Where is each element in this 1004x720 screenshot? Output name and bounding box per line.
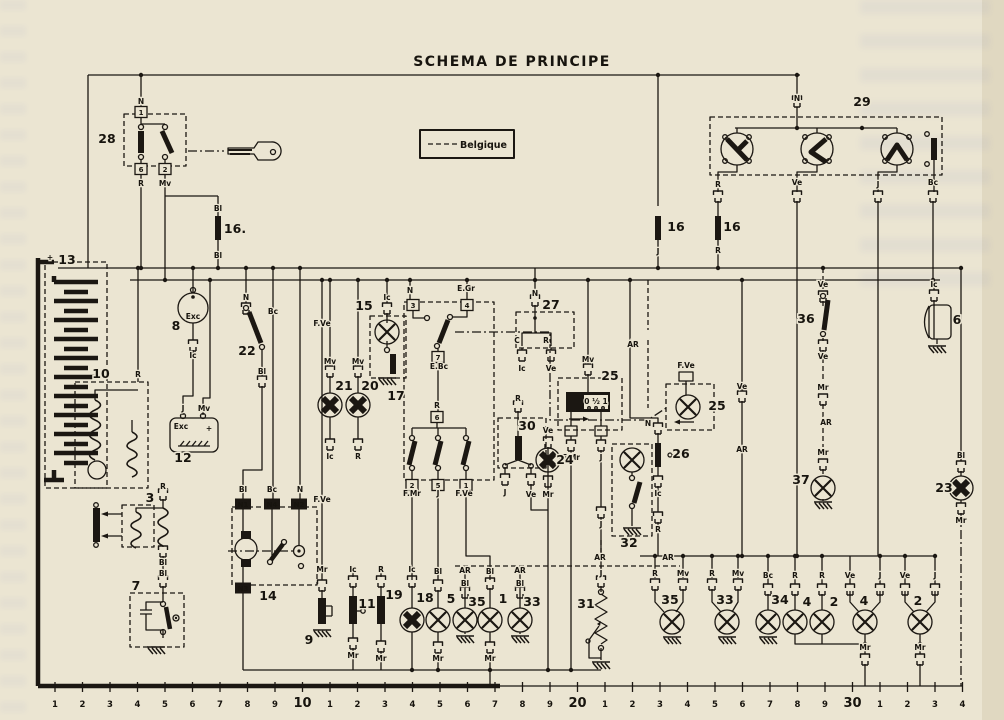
component-number: 20 bbox=[361, 378, 379, 393]
wire-label: R bbox=[355, 452, 361, 461]
scale-number: 5 bbox=[437, 700, 443, 710]
wire-label: R bbox=[160, 482, 166, 491]
scale-number: 7 bbox=[217, 700, 223, 710]
scale-number: 5 bbox=[712, 700, 718, 710]
wire-label: N bbox=[138, 97, 144, 106]
wire-label: Bc bbox=[928, 178, 938, 187]
wire-label: Ic bbox=[408, 565, 415, 574]
wire-label: F.Ve bbox=[313, 319, 330, 328]
terminal-box-label: N2 bbox=[294, 501, 305, 509]
component-number: 19 bbox=[385, 587, 402, 602]
wire-label: Mv bbox=[198, 404, 210, 413]
component-28-ignition-switch bbox=[124, 114, 186, 166]
component-number: 32 bbox=[620, 535, 637, 550]
component-19-switch bbox=[377, 596, 385, 624]
component-35r-lamp bbox=[660, 610, 684, 644]
wire-label: R bbox=[819, 571, 825, 580]
component-number: 16 bbox=[667, 219, 685, 234]
component-number: 26 bbox=[672, 446, 690, 461]
wire-label: Ic bbox=[518, 364, 525, 373]
wire-label: R bbox=[715, 180, 721, 189]
wire-label: R bbox=[138, 179, 144, 188]
schematic-canvas: SCHEMA DE PRINCIPE Belgique 1623476251N1… bbox=[0, 0, 1004, 720]
scale-number: 20 bbox=[568, 696, 586, 711]
component-37-lamp bbox=[811, 476, 835, 509]
fuse-16-right bbox=[715, 216, 721, 240]
scale-number: 3 bbox=[932, 700, 938, 710]
wire-label: AR bbox=[820, 418, 832, 427]
component-1-lamp bbox=[478, 608, 502, 632]
wire-label: Mv bbox=[352, 357, 364, 366]
ignition-key-icon bbox=[228, 142, 281, 160]
component-number: 35 bbox=[661, 592, 678, 607]
component-18-lamp bbox=[400, 608, 424, 632]
component-33-lamp bbox=[508, 608, 532, 643]
scale-number: 7 bbox=[492, 700, 498, 710]
wire-label: Mr bbox=[817, 448, 828, 457]
terminal-box-label: N3 bbox=[238, 585, 249, 593]
component-32-lamp-switch bbox=[612, 444, 652, 536]
component-number: 31 bbox=[577, 596, 594, 611]
wire-label: Ic bbox=[383, 293, 390, 302]
component-number: 16. bbox=[224, 221, 246, 236]
wire-label: Bl bbox=[957, 451, 965, 460]
wire-label: Ic bbox=[349, 565, 356, 574]
scale-number: 8 bbox=[795, 700, 801, 710]
wire-label: Ic bbox=[654, 489, 661, 498]
component-number: 15 bbox=[355, 298, 372, 313]
scale-number: 2 bbox=[80, 700, 86, 710]
wire-label: Mr bbox=[914, 643, 925, 652]
scale-number: 9 bbox=[272, 700, 278, 710]
component-number: 35 bbox=[468, 594, 485, 609]
scale-number: 6 bbox=[740, 700, 746, 710]
component-25-selector bbox=[558, 378, 622, 436]
wire-label: N bbox=[407, 286, 413, 295]
component-25-pilot-lamp bbox=[666, 372, 714, 430]
wire-label: Ve bbox=[526, 490, 536, 499]
component-number: 25 bbox=[601, 368, 618, 383]
wire-label: N bbox=[645, 419, 651, 428]
scale-number: 4 bbox=[410, 700, 416, 710]
wire-label: Ic bbox=[189, 351, 196, 360]
wire-label: F.Mr bbox=[403, 489, 421, 498]
component-33r-lamp bbox=[715, 610, 739, 644]
component-number: 27 bbox=[542, 297, 559, 312]
wire-label: Mr bbox=[817, 383, 828, 392]
wire-label: R bbox=[655, 525, 661, 534]
wire-label: J bbox=[599, 569, 603, 578]
wire-label: Bl bbox=[516, 579, 524, 588]
component-number: 25 bbox=[708, 398, 725, 413]
wire-label: Mr bbox=[347, 651, 358, 660]
wire-label: N bbox=[297, 485, 303, 494]
component-number: 24 bbox=[556, 452, 574, 467]
wire-label: Mr bbox=[316, 565, 327, 574]
component-15-lamp-switch bbox=[370, 316, 406, 385]
component-14-flasher-relay bbox=[232, 507, 317, 585]
wire-label: Mr bbox=[432, 654, 443, 663]
wire-label: F.Ve bbox=[677, 361, 694, 370]
component-number: 18 bbox=[416, 590, 433, 605]
terminal-box-label: 7 bbox=[436, 354, 441, 362]
wire-label: AR bbox=[514, 566, 526, 575]
scale-number: 1 bbox=[602, 700, 608, 710]
legend-belgique: Belgique bbox=[420, 130, 514, 158]
wire-label: Mr bbox=[859, 643, 870, 652]
wire-label: Bc bbox=[763, 571, 773, 580]
wire-label: Mr bbox=[542, 490, 553, 499]
wire-label: R bbox=[715, 246, 721, 255]
component-17-switch-block bbox=[404, 302, 494, 480]
scale-number: 10 bbox=[293, 696, 311, 711]
terminal-box-label: N4 bbox=[267, 501, 278, 509]
scale-number: 1 bbox=[877, 700, 883, 710]
wire-label: Bl bbox=[214, 251, 222, 260]
component-number: 8 bbox=[172, 318, 181, 333]
wire-label: Bc bbox=[267, 485, 277, 494]
wire-label: Ve bbox=[900, 571, 910, 580]
scanned-schematic-page: SCHEMA DE PRINCIPE Belgique 1623476251N1… bbox=[0, 0, 1004, 720]
wire-label: Ic bbox=[930, 280, 937, 289]
wire-label: Mr bbox=[375, 654, 386, 663]
scale-number: 3 bbox=[382, 700, 388, 710]
component-number: 34 bbox=[771, 592, 789, 607]
terminal-box-label: N1 bbox=[238, 501, 249, 509]
wire-label: R bbox=[792, 571, 798, 580]
terminal-boxes-layer: 1623476251N1N4N2N3 bbox=[135, 107, 473, 594]
scale-number: 3 bbox=[107, 700, 113, 710]
component-number: 36 bbox=[797, 311, 815, 326]
wire-label: R bbox=[434, 401, 440, 410]
component-9-brake-switch bbox=[313, 598, 332, 637]
component-number: 16 bbox=[723, 219, 741, 234]
component-2-lamp bbox=[810, 610, 834, 634]
labels-layer: NRMvBlBlNRVeJBcJR+RExcIcJMvExc+NBcBlMvMv… bbox=[47, 94, 967, 663]
wire-label: Ve bbox=[818, 352, 828, 361]
fuse-16-left bbox=[215, 216, 221, 240]
wire-label: Bl bbox=[214, 204, 222, 213]
component-number: 9 bbox=[305, 632, 314, 647]
component-3-ignition-coil bbox=[93, 503, 168, 548]
scale-number: 1 bbox=[327, 700, 333, 710]
scale-number: 4 bbox=[685, 700, 691, 710]
component-number: 7 bbox=[132, 578, 141, 593]
wire-label: Mr bbox=[955, 516, 966, 525]
wire-label: Mv bbox=[582, 355, 594, 364]
component-number: 4 bbox=[860, 593, 869, 608]
component-number: 1 bbox=[499, 591, 508, 606]
wire-label: Mr bbox=[484, 654, 495, 663]
wire-label: J bbox=[503, 488, 507, 497]
scale-number: 8 bbox=[520, 700, 526, 710]
wire-label: Bl bbox=[258, 367, 266, 376]
scale-number: 2 bbox=[355, 700, 361, 710]
component-35-lamp bbox=[453, 608, 477, 643]
terminal-box-label: 3 bbox=[411, 302, 416, 310]
terminal-box-label: 6 bbox=[435, 414, 440, 422]
wire-label: J bbox=[933, 571, 937, 580]
component-number: 17 bbox=[387, 388, 404, 403]
component-number: 5 bbox=[447, 591, 456, 606]
wire-label: J bbox=[599, 453, 603, 462]
wire-label: N bbox=[794, 94, 800, 103]
legend-label: Belgique bbox=[460, 140, 507, 151]
wire-label: Ve bbox=[737, 382, 747, 391]
wire-label: Bl bbox=[159, 569, 167, 578]
wire-label: + bbox=[206, 424, 212, 433]
wire-label: J bbox=[876, 180, 880, 189]
wire-label: F.Ve bbox=[313, 495, 330, 504]
wire-label: N bbox=[532, 289, 538, 298]
scale-number: 1 bbox=[52, 700, 58, 710]
terminal-box-label: 6 bbox=[139, 166, 144, 174]
wire-label: Bc bbox=[268, 307, 278, 316]
page-title: SCHEMA DE PRINCIPE bbox=[413, 54, 611, 70]
fuse-16-mid bbox=[655, 216, 661, 240]
wire-label: Exc bbox=[186, 312, 200, 321]
wire-label: R bbox=[515, 394, 521, 403]
wire-label: Mv bbox=[677, 569, 689, 578]
wire-label: Bl bbox=[239, 485, 247, 494]
component-number: 2 bbox=[830, 594, 839, 609]
component-number: 4 bbox=[803, 594, 812, 609]
component-2b-lamp bbox=[908, 610, 932, 634]
wire-label: Exc bbox=[174, 422, 188, 431]
component-26-fuse bbox=[655, 443, 672, 467]
wire-label: C bbox=[514, 336, 520, 345]
component-number: 2 bbox=[914, 593, 923, 608]
scale-number: 7 bbox=[767, 700, 773, 710]
terminal-box-label: 1 bbox=[139, 109, 144, 117]
terminal-box-label: 4 bbox=[465, 302, 470, 310]
component-36-switch bbox=[821, 294, 829, 337]
component-number: 23 bbox=[935, 480, 952, 495]
component-number: 30 bbox=[518, 418, 536, 433]
wire-label: J bbox=[656, 247, 660, 256]
component-number: 13 bbox=[58, 252, 75, 267]
wire-label: Ve bbox=[543, 426, 553, 435]
wire-label: R bbox=[378, 565, 384, 574]
component-number: 29 bbox=[853, 94, 870, 109]
wire-label: AR bbox=[459, 566, 471, 575]
wire-label: N bbox=[243, 293, 249, 302]
component-number: 14 bbox=[259, 588, 277, 603]
scale-number: 3 bbox=[657, 700, 663, 710]
scale-number: 5 bbox=[162, 700, 168, 710]
component-number: 3 bbox=[146, 490, 155, 505]
scale-number: 9 bbox=[822, 700, 828, 710]
wiring-solid bbox=[58, 75, 962, 686]
component-number: 37 bbox=[792, 472, 809, 487]
component-5-lamp bbox=[426, 608, 450, 632]
component-number: 6 bbox=[953, 312, 962, 327]
terminal-box-label: 2 bbox=[163, 166, 168, 174]
wire-label: AR bbox=[627, 340, 639, 349]
wire-label: Bl bbox=[159, 558, 167, 567]
wire-label: + bbox=[47, 253, 53, 262]
wire-label: AR bbox=[594, 553, 606, 562]
wire-label: Bl bbox=[461, 579, 469, 588]
wire-label: Mv bbox=[732, 569, 744, 578]
component-20-lamp bbox=[346, 393, 370, 417]
wire-label: Ve bbox=[818, 280, 828, 289]
scale-number: 6 bbox=[465, 700, 471, 710]
component-number: 28 bbox=[98, 131, 115, 146]
component-number: 22 bbox=[238, 343, 255, 358]
wire-label: Mv bbox=[159, 179, 171, 188]
component-number: 10 bbox=[92, 366, 110, 381]
component-number: 12 bbox=[174, 450, 191, 465]
wire-label: J bbox=[878, 571, 882, 580]
component-29-lighting-switch-unit bbox=[710, 107, 942, 192]
scale-number: 2 bbox=[630, 700, 636, 710]
component-6-horn bbox=[925, 305, 952, 353]
wire-label: Ve bbox=[546, 364, 556, 373]
scale-number: 30 bbox=[843, 696, 861, 711]
scale-number: 9 bbox=[547, 700, 553, 710]
scale-number: 8 bbox=[245, 700, 251, 710]
wire-label: Ic bbox=[326, 452, 333, 461]
scale-number: 6 bbox=[190, 700, 196, 710]
scale-number: 4 bbox=[960, 700, 966, 710]
wire-label: 0 ½ 1 bbox=[584, 397, 607, 406]
wire-label: J bbox=[436, 489, 440, 498]
scale-number: 4 bbox=[135, 700, 141, 710]
wire-label: R bbox=[652, 569, 658, 578]
component-4-lamp bbox=[783, 610, 807, 634]
wire-label: E.Gr bbox=[457, 284, 475, 293]
wire-label: Ve bbox=[792, 178, 802, 187]
component-34-lamp bbox=[756, 610, 780, 644]
wire-label: E.Bc bbox=[430, 362, 448, 371]
wire-label: R bbox=[135, 370, 141, 379]
wire-label: AR bbox=[662, 553, 674, 562]
wire-label: R bbox=[543, 336, 549, 345]
wire-label: AR bbox=[736, 445, 748, 454]
wire-label: Mv bbox=[324, 357, 336, 366]
component-number: 33 bbox=[716, 592, 733, 607]
wire-label: J bbox=[181, 404, 185, 413]
wire-label: F.Ve bbox=[455, 489, 472, 498]
wire-label: J bbox=[599, 520, 603, 529]
scale-number: 2 bbox=[905, 700, 911, 710]
wire-label: Bl bbox=[486, 567, 494, 576]
lamp-icon bbox=[375, 320, 399, 344]
component-4b-lamp bbox=[853, 610, 877, 634]
component-number: 33 bbox=[523, 594, 540, 609]
wire-label: R bbox=[709, 569, 715, 578]
wire-label: Ve bbox=[845, 571, 855, 580]
component-number: 21 bbox=[335, 378, 352, 393]
component-number: 11 bbox=[358, 596, 375, 611]
wire-label: Bl bbox=[434, 567, 442, 576]
